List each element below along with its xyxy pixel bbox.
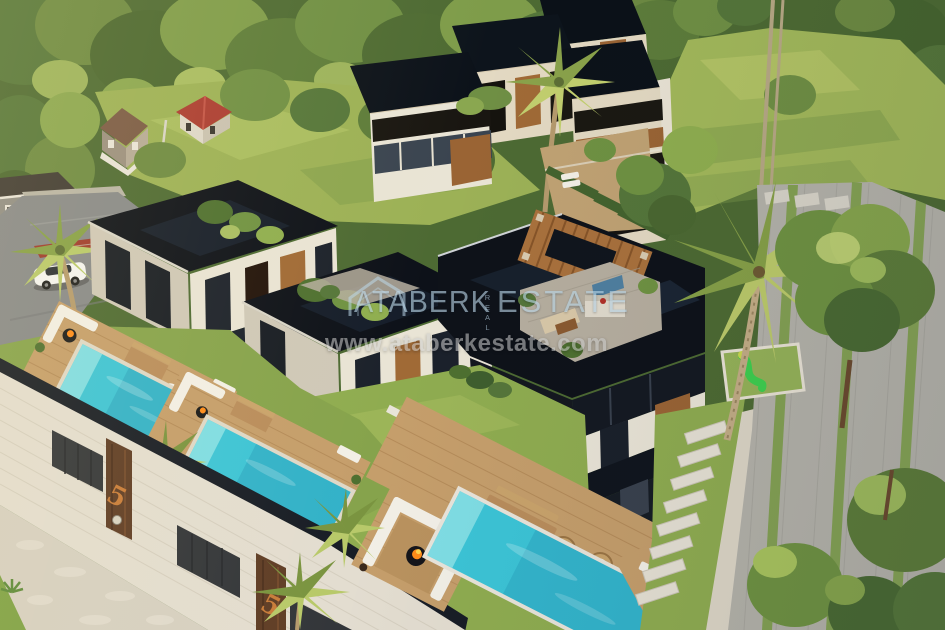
scene-render: 5 5 bbox=[0, 0, 945, 630]
render-image: 5 5 bbox=[0, 0, 945, 630]
garage-plaque-1: 5 bbox=[102, 438, 132, 540]
